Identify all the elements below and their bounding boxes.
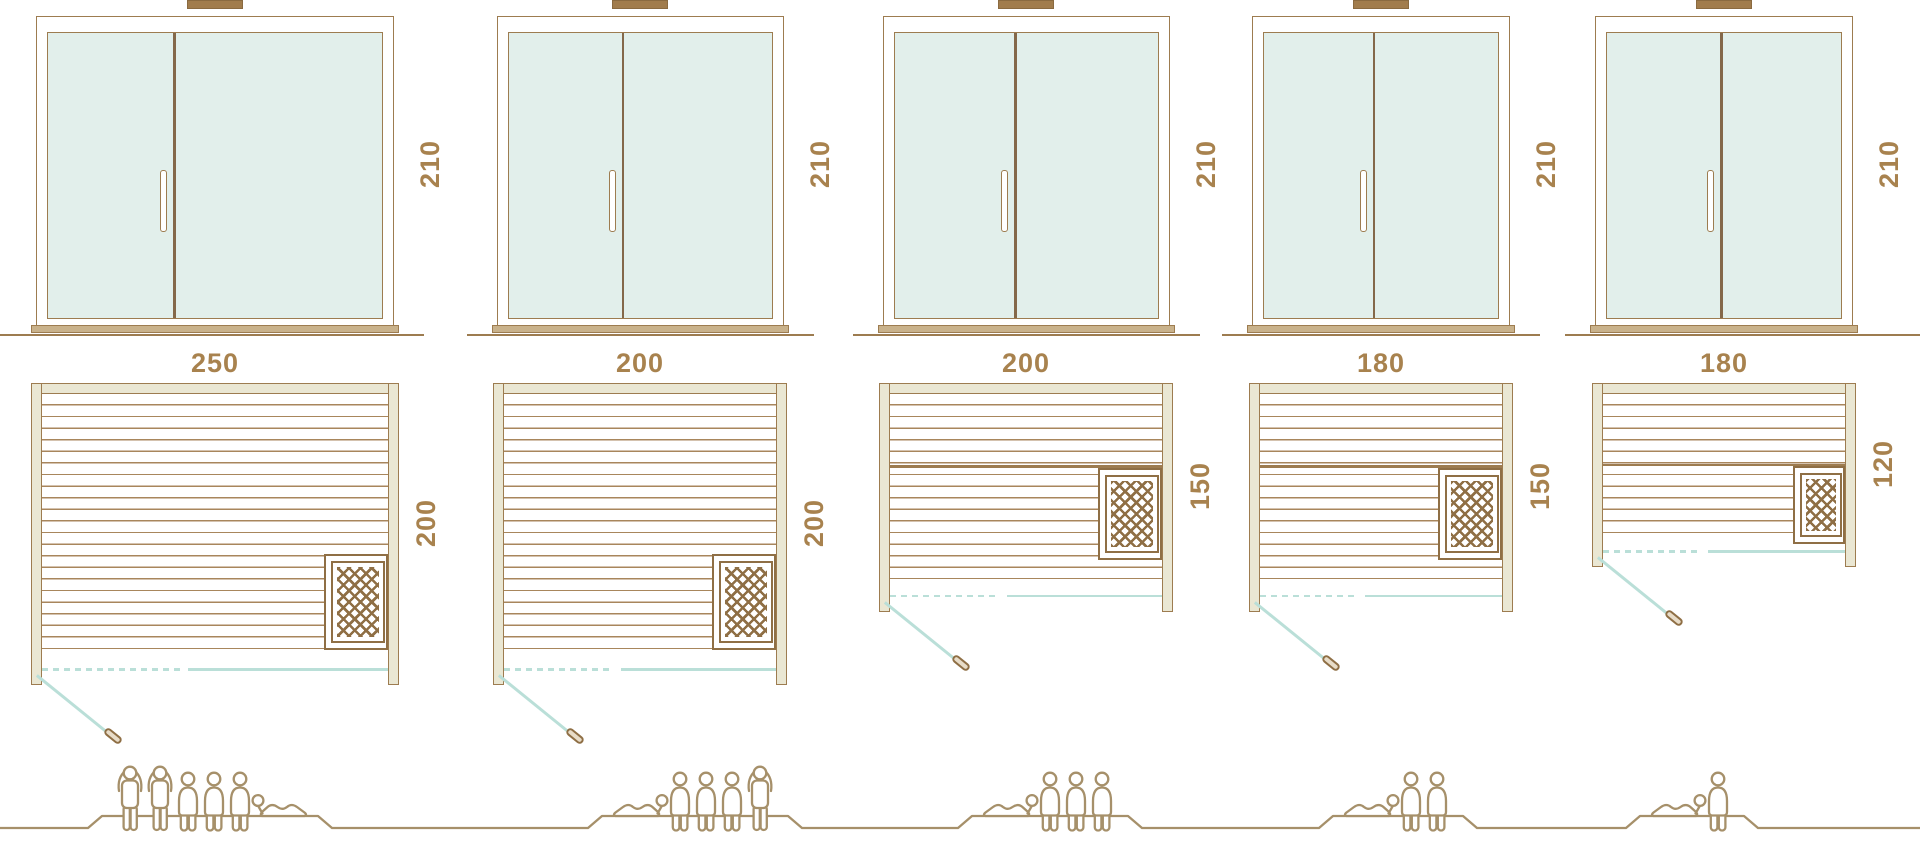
person-sitting-icon xyxy=(179,773,197,831)
person-sitting-icon xyxy=(671,773,689,831)
person-lying-icon xyxy=(1652,795,1705,816)
ground-line xyxy=(0,816,1920,828)
person-lying-icon xyxy=(984,795,1037,816)
person-sitting-icon xyxy=(1041,773,1059,831)
person-sitting-icon xyxy=(1709,773,1727,831)
capacity-figures xyxy=(0,0,1920,856)
person-lying-icon xyxy=(253,795,306,816)
person-lying-icon xyxy=(614,795,667,816)
person-standing-icon xyxy=(149,767,172,830)
person-sitting-icon xyxy=(1093,773,1111,831)
sauna-comparison-diagram: 210 250 200 210 200 xyxy=(0,0,1920,856)
person-sitting-icon xyxy=(697,773,715,831)
person-sitting-icon xyxy=(205,773,223,831)
person-standing-icon xyxy=(119,767,142,830)
person-standing-icon xyxy=(749,767,772,830)
person-sitting-icon xyxy=(1428,773,1446,831)
person-lying-icon xyxy=(1345,795,1398,816)
person-sitting-icon xyxy=(1067,773,1085,831)
person-sitting-icon xyxy=(1402,773,1420,831)
person-sitting-icon xyxy=(723,773,741,831)
person-sitting-icon xyxy=(231,773,249,831)
